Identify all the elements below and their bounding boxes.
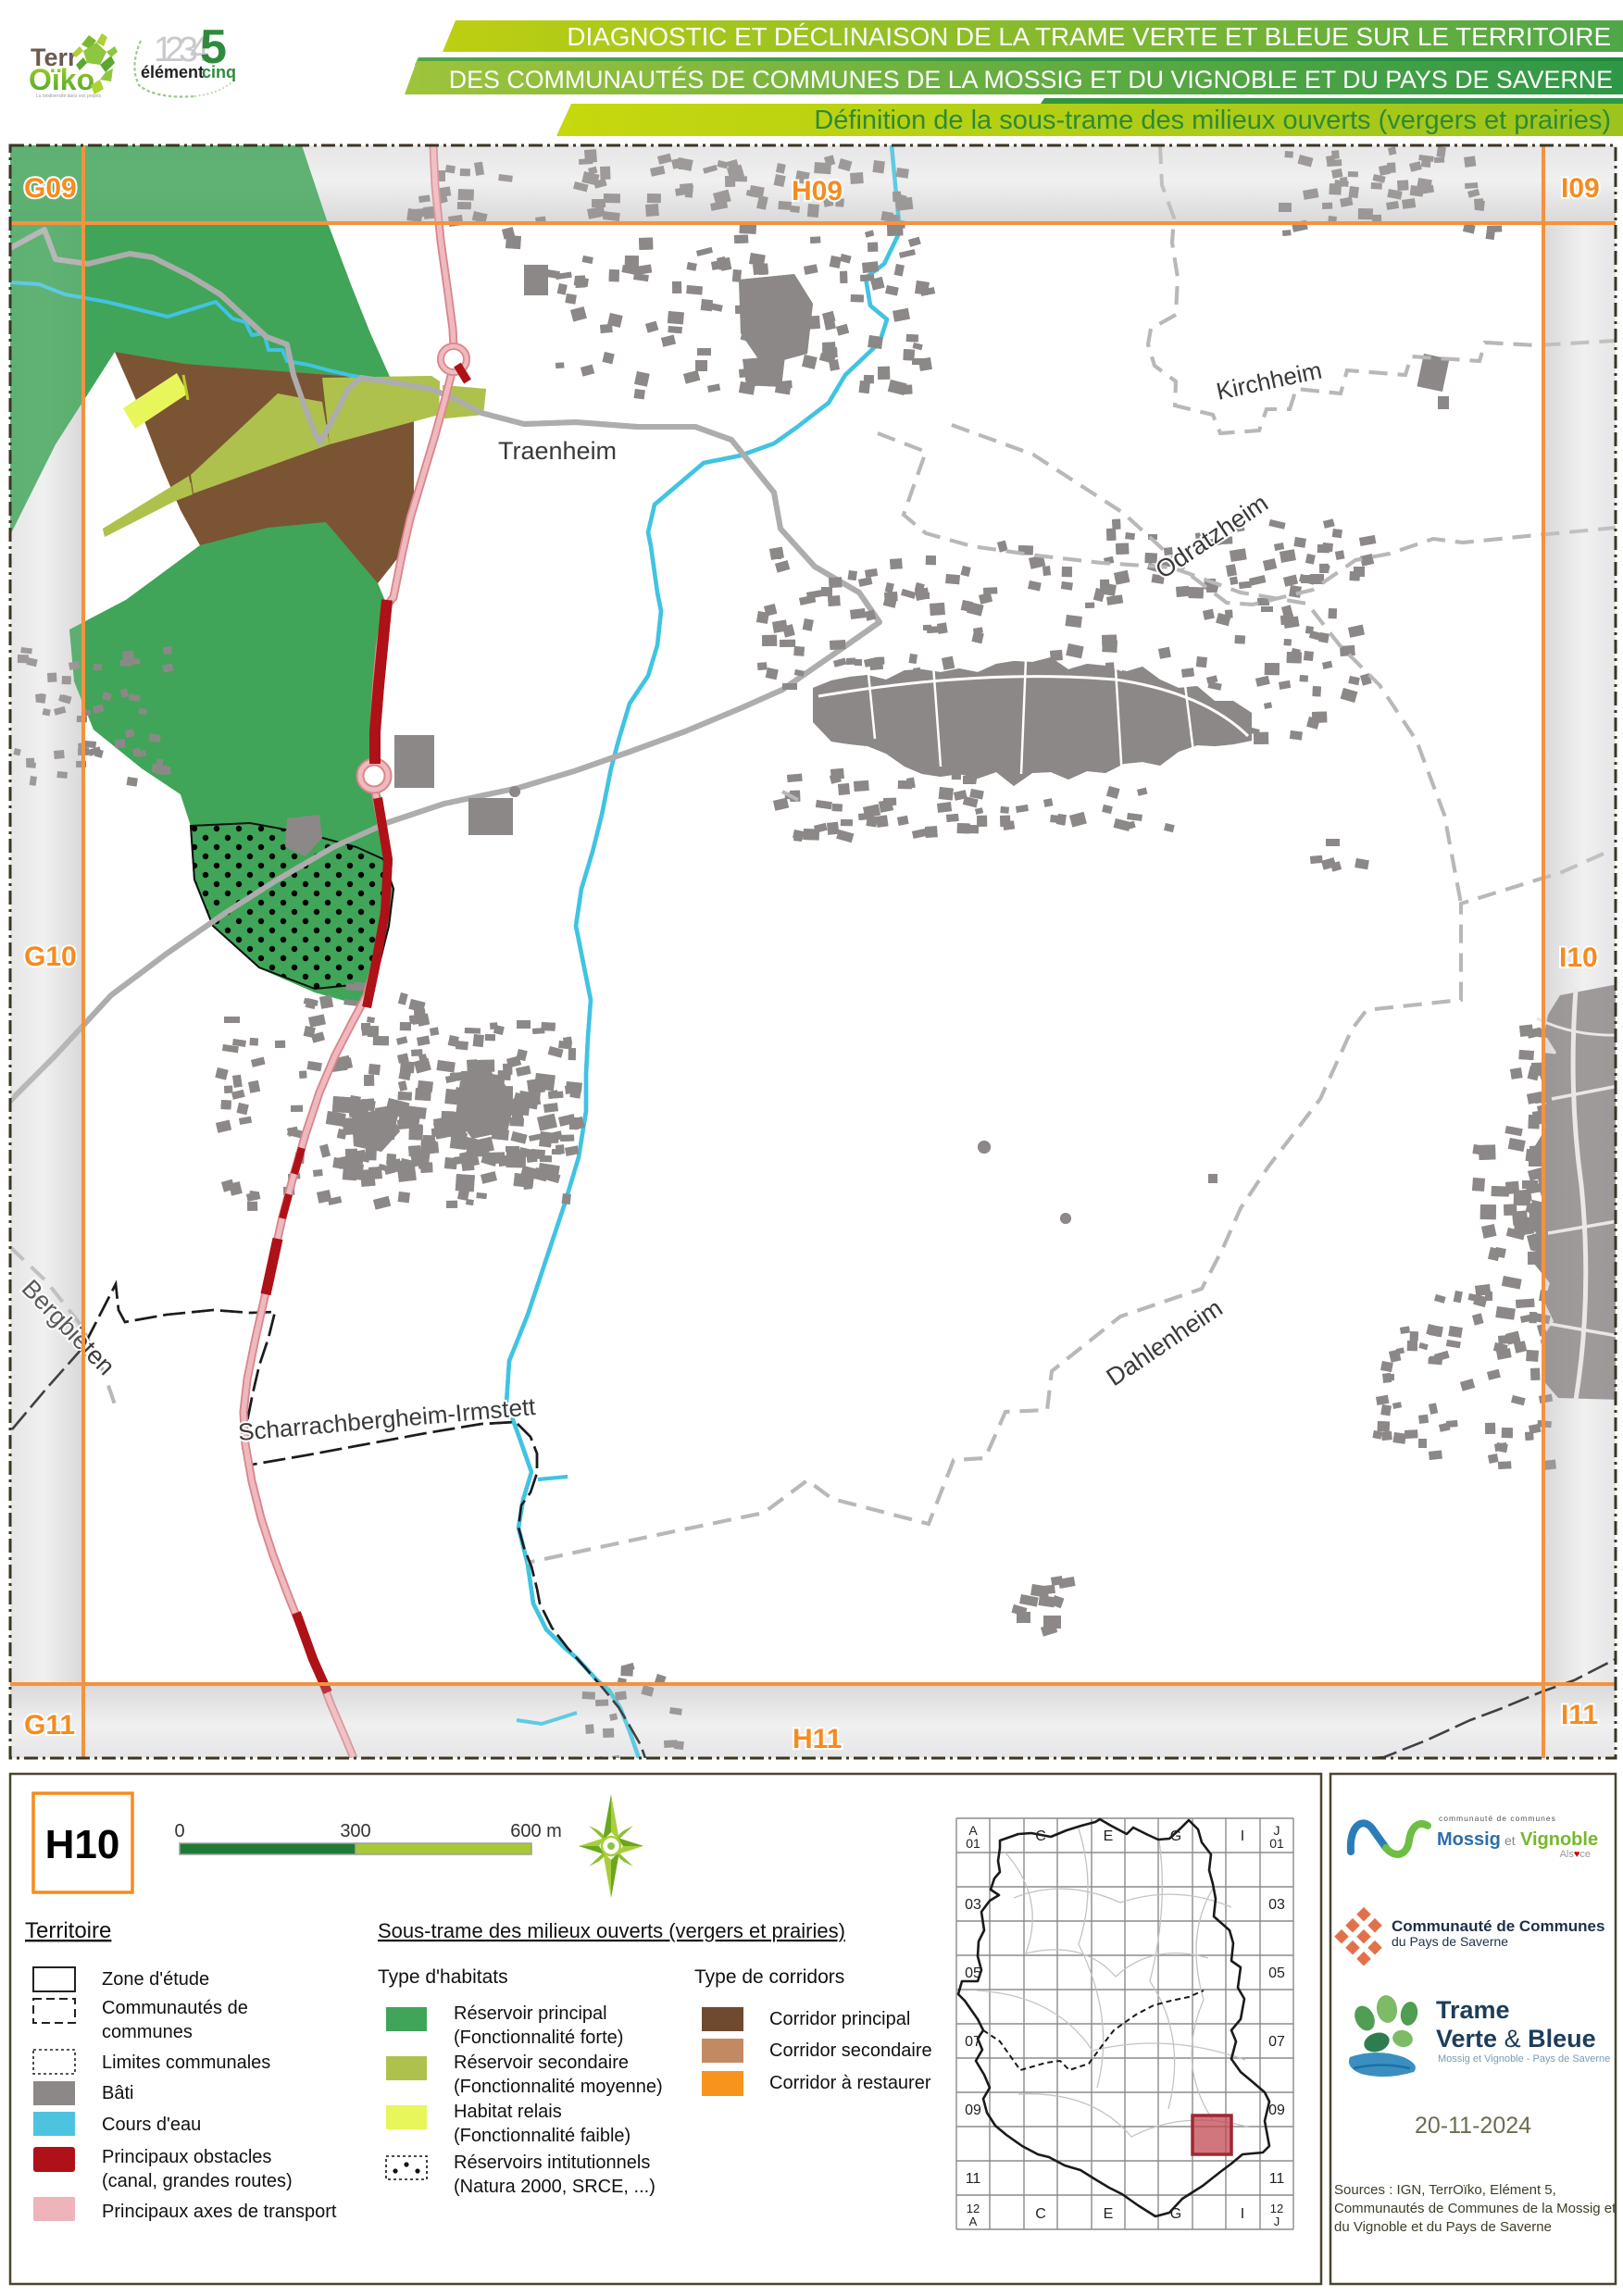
svg-text:(Fonctionnalité faible): (Fonctionnalité faible)	[454, 2126, 630, 2146]
svg-text:H11: H11	[793, 1724, 842, 1754]
svg-text:11: 11	[966, 2171, 981, 2187]
svg-text:09: 09	[1268, 2103, 1285, 2118]
svg-text:C: C	[1035, 1828, 1046, 1844]
svg-text:Traenheim: Traenheim	[498, 437, 617, 465]
svg-text:07: 07	[1268, 2034, 1285, 2050]
svg-text:01: 01	[1269, 1836, 1284, 1851]
svg-text:Réservoirs intitutionnels: Réservoirs intitutionnels	[454, 2152, 650, 2173]
svg-text:Corridor à restaurer: Corridor à restaurer	[769, 2073, 931, 2093]
svg-text:E: E	[1104, 2206, 1114, 2222]
svg-text:20-11-2024: 20-11-2024	[1415, 2113, 1531, 2139]
svg-text:(Fonctionnalité moyenne): (Fonctionnalité moyenne)	[454, 2077, 663, 2097]
svg-text:Vignoble: Vignoble	[1520, 1829, 1598, 1850]
svg-text:0: 0	[174, 1821, 184, 1841]
svg-text:Mossig et Vignoble - Pays de S: Mossig et Vignoble - Pays de Saverne	[1438, 2053, 1610, 2065]
svg-text:I: I	[1241, 2206, 1244, 2222]
svg-text:élément: élément	[141, 63, 204, 81]
svg-text:Limites communales: Limites communales	[102, 2053, 270, 2073]
svg-text:(canal, grandes routes): (canal, grandes routes)	[102, 2171, 293, 2191]
svg-text:Réservoir principal: Réservoir principal	[454, 2003, 607, 2024]
svg-text:(Natura 2000, SRCE, ...): (Natura 2000, SRCE, ...)	[454, 2177, 655, 2197]
svg-text:communauté de communes: communauté de communes	[1439, 1814, 1556, 1823]
svg-text:G10: G10	[24, 942, 77, 972]
svg-text:Bâti: Bâti	[102, 2083, 133, 2103]
svg-text:cinq: cinq	[202, 63, 236, 81]
svg-text:communes: communes	[102, 2022, 193, 2042]
svg-text:du Pays de Saverne: du Pays de Saverne	[1392, 1934, 1508, 1949]
svg-text:Zone d'étude: Zone d'étude	[102, 1969, 209, 1990]
svg-text:Corridor principal: Corridor principal	[769, 2009, 910, 2029]
svg-text:E: E	[1104, 1828, 1114, 1844]
svg-text:H10: H10	[45, 1822, 120, 1867]
svg-text:Mossig: Mossig	[1437, 1829, 1501, 1850]
svg-text:11: 11	[1269, 2171, 1285, 2187]
svg-text:Type de corridors: Type de corridors	[694, 1966, 844, 1988]
svg-text:G: G	[1170, 2206, 1181, 2222]
svg-text:12: 12	[967, 2202, 980, 2215]
svg-text:Communautés de: Communautés de	[102, 1998, 248, 2018]
svg-text:A: A	[969, 2215, 978, 2228]
svg-text:Réservoir secondaire: Réservoir secondaire	[454, 2053, 629, 2073]
svg-text:G09: G09	[24, 173, 77, 204]
svg-text:05: 05	[965, 1965, 981, 1981]
svg-text:Sous-trame des milieux ouverts: Sous-trame des milieux ouverts (vergers …	[378, 1919, 845, 1942]
svg-text:C: C	[1035, 2206, 1046, 2222]
svg-text:G: G	[1170, 1828, 1181, 1844]
svg-text:Type d'habitats: Type d'habitats	[378, 1966, 508, 1988]
svg-text:Habitat relais: Habitat relais	[454, 2102, 562, 2122]
svg-text:Trame: Trame	[1436, 1996, 1510, 2024]
svg-text:03: 03	[965, 1897, 981, 1913]
svg-text:Corridor secondaire: Corridor secondaire	[769, 2040, 932, 2061]
svg-text:du Vignoble et du Pays de Save: du Vignoble et du Pays de Saverne	[1334, 2219, 1552, 2235]
svg-text:Principaux axes de transport: Principaux axes de transport	[102, 2202, 337, 2222]
svg-text:05: 05	[1268, 1965, 1285, 1981]
svg-text:Territoire: Territoire	[25, 1918, 111, 1943]
svg-text:I: I	[1241, 1828, 1244, 1844]
svg-text:01: 01	[966, 1836, 980, 1851]
svg-text:07: 07	[965, 2034, 981, 2050]
svg-text:I09: I09	[1561, 173, 1600, 204]
svg-text:09: 09	[965, 2103, 981, 2118]
svg-text:DIAGNOSTIC ET DÉCLINAISON DE L: DIAGNOSTIC ET DÉCLINAISON DE LA TRAME VE…	[567, 22, 1611, 51]
svg-text:Communautés de Communes de la: Communautés de Communes de la Mossig et	[1334, 2201, 1617, 2216]
svg-text:H09: H09	[792, 176, 843, 206]
svg-text:Cours d'eau: Cours d'eau	[102, 2115, 201, 2135]
svg-text:Sources : IGN, TerrOïko, Eléme: Sources : IGN, TerrOïko, Elément 5,	[1334, 2182, 1556, 2198]
svg-text:(Fonctionnalité forte): (Fonctionnalité forte)	[454, 2028, 623, 2048]
svg-text:300: 300	[340, 1821, 370, 1841]
svg-text:Oïko: Oïko	[29, 63, 94, 96]
svg-text:Définition de la sous-trame de: Définition de la sous-trame des milieux …	[814, 106, 1611, 135]
svg-text:12: 12	[1270, 2202, 1283, 2215]
svg-text:I11: I11	[1561, 1700, 1598, 1730]
svg-text:Als♥ce: Als♥ce	[1560, 1849, 1591, 1860]
svg-text:Principaux obstacles: Principaux obstacles	[102, 2147, 271, 2167]
svg-text:et: et	[1504, 1833, 1516, 1848]
svg-text:03: 03	[1268, 1897, 1285, 1913]
svg-text:I10: I10	[1559, 942, 1598, 973]
svg-text:J: J	[1274, 2215, 1280, 2228]
svg-text:DES COMMUNAUTÉS DE COMMUNES DE: DES COMMUNAUTÉS DE COMMUNES DE LA MOSSIG…	[449, 66, 1613, 94]
svg-text:600 m: 600 m	[510, 1821, 562, 1841]
svg-text:Verte & Bleue: Verte & Bleue	[1436, 2025, 1596, 2053]
svg-text:La biodiversité dans vos proje: La biodiversité dans vos projets	[36, 94, 102, 99]
svg-text:Communauté de Communes: Communauté de Communes	[1392, 1917, 1604, 1935]
svg-text:G11: G11	[24, 1710, 75, 1741]
